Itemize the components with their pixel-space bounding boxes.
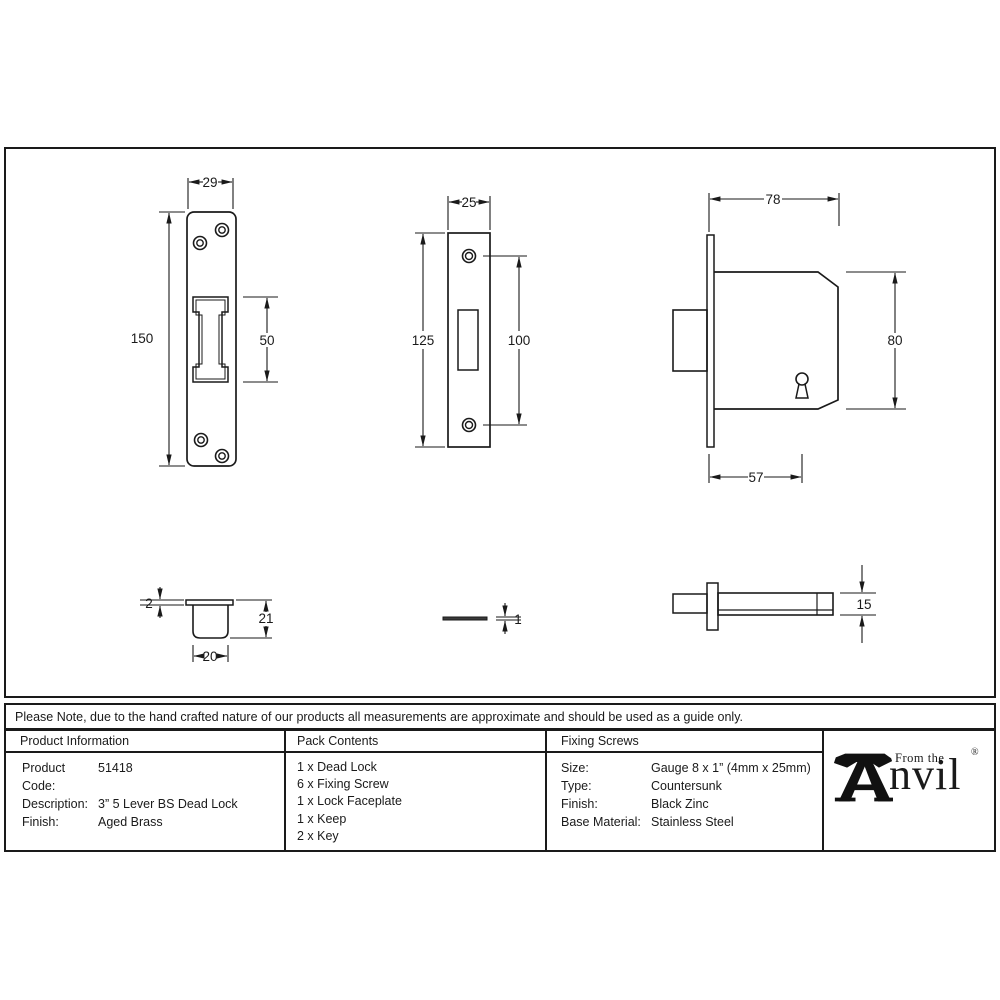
brand-logo-cell: From the nvil ® bbox=[824, 731, 994, 850]
dim-label-keep-hole-spacing: 100 bbox=[508, 333, 531, 348]
pack-contents-header: Pack Contents bbox=[286, 731, 545, 753]
dim-label-keep-flange: 2 bbox=[145, 596, 153, 611]
dim-label-lock-height: 80 bbox=[887, 333, 902, 348]
pack-item: 2 x Key bbox=[286, 828, 545, 845]
dim-label-faceplate-height: 150 bbox=[131, 331, 154, 346]
screw-finish-label: Finish: bbox=[547, 795, 651, 813]
dim-label-keep-depth: 21 bbox=[258, 611, 273, 626]
technical-drawing: 29 150 50 25 bbox=[6, 149, 994, 696]
description-label: Description: bbox=[6, 795, 98, 813]
spec-table: Product Information Product Code: 51418 … bbox=[4, 729, 996, 852]
finish-label: Finish: bbox=[6, 813, 98, 831]
lock-top-drawing: 15 bbox=[673, 565, 876, 643]
registered-trademark-icon: ® bbox=[971, 747, 979, 758]
product-code-value: 51418 bbox=[98, 759, 133, 795]
screw-size-label: Size: bbox=[547, 759, 651, 777]
faceplate-front-drawing: 29 150 50 bbox=[131, 175, 278, 466]
dim-label-lock-width: 78 bbox=[765, 192, 780, 207]
from-the-anvil-logo: From the nvil ® bbox=[833, 747, 985, 809]
fixing-screws-column: Fixing Screws Size: Gauge 8 x 1” (4mm x … bbox=[547, 731, 824, 850]
dim-label-faceplate-thickness: 1 bbox=[514, 612, 522, 627]
logo-wordmark: nvil bbox=[889, 749, 961, 801]
product-code-row: Product Code: 51418 bbox=[6, 759, 284, 795]
anvil-icon bbox=[833, 749, 893, 805]
product-information-column: Product Information Product Code: 51418 … bbox=[6, 731, 286, 850]
screw-size-value: Gauge 8 x 1” (4mm x 25mm) bbox=[651, 759, 811, 777]
finish-value: Aged Brass bbox=[98, 813, 163, 831]
pack-contents-column: Pack Contents 1 x Dead Lock 6 x Fixing S… bbox=[286, 731, 547, 850]
keep-side-drawing: 2 21 20 bbox=[140, 587, 274, 664]
product-spec-sheet: { "note": "Please Note, due to the hand … bbox=[0, 0, 1000, 1000]
screw-finish-value: Black Zinc bbox=[651, 795, 709, 813]
dim-label-keep-width: 25 bbox=[461, 195, 476, 210]
dim-label-lock-backset: 57 bbox=[748, 470, 763, 485]
dim-label-faceplate-width: 29 bbox=[202, 175, 217, 190]
dim-label-faceplate-cutout: 50 bbox=[259, 333, 274, 348]
screw-material-value: Stainless Steel bbox=[651, 813, 734, 831]
dim-label-keep-height: 125 bbox=[412, 333, 435, 348]
measurement-note: Please Note, due to the hand crafted nat… bbox=[4, 703, 996, 730]
keep-front-drawing: 25 125 100 bbox=[412, 195, 531, 447]
faceplate-side-drawing: 1 bbox=[443, 603, 522, 634]
screw-type-value: Countersunk bbox=[651, 777, 722, 795]
pack-item: 6 x Fixing Screw bbox=[286, 776, 545, 793]
screw-finish-row: Finish: Black Zinc bbox=[547, 795, 822, 813]
product-information-header: Product Information bbox=[6, 731, 284, 753]
screw-size-row: Size: Gauge 8 x 1” (4mm x 25mm) bbox=[547, 759, 822, 777]
drawing-area: 29 150 50 25 bbox=[4, 147, 996, 698]
pack-item: 1 x Lock Faceplate bbox=[286, 793, 545, 810]
screw-type-row: Type: Countersunk bbox=[547, 777, 822, 795]
fixing-screws-header: Fixing Screws bbox=[547, 731, 822, 753]
finish-row: Finish: Aged Brass bbox=[6, 813, 284, 831]
lock-case-drawing: 78 80 57 bbox=[673, 192, 906, 485]
dim-label-keep-side-width: 20 bbox=[202, 649, 217, 664]
screw-material-label: Base Material: bbox=[547, 813, 651, 831]
pack-item: 1 x Keep bbox=[286, 811, 545, 828]
pack-item: 1 x Dead Lock bbox=[286, 759, 545, 776]
description-value: 3” 5 Lever BS Dead Lock bbox=[98, 795, 238, 813]
note-text: Please Note, due to the hand crafted nat… bbox=[6, 710, 743, 724]
description-row: Description: 3” 5 Lever BS Dead Lock bbox=[6, 795, 284, 813]
product-code-label: Product Code: bbox=[6, 759, 98, 795]
dim-label-lock-thickness: 15 bbox=[856, 597, 871, 612]
screw-material-row: Base Material: Stainless Steel bbox=[547, 813, 822, 831]
screw-type-label: Type: bbox=[547, 777, 651, 795]
